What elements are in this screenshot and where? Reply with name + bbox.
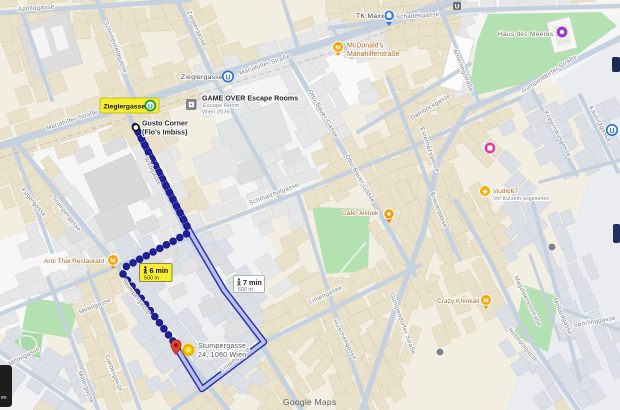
svg-text:600 m: 600 m (238, 287, 253, 293)
svg-text:Zieglergasse: Zieglergasse (181, 74, 223, 81)
svg-text:en: en (1, 395, 7, 401)
svg-text:Haus des Meeres: Haus des Meeres (498, 31, 554, 38)
svg-text:Zieglergasse: Zieglergasse (104, 104, 146, 111)
svg-text:Café Jelinek: Café Jelinek (342, 210, 379, 217)
svg-text:U: U (225, 75, 230, 82)
svg-text:★: ★ (482, 188, 489, 196)
svg-text:M: M (335, 45, 341, 52)
svg-text:Gusto Corner: Gusto Corner (142, 120, 188, 128)
svg-text:7 min: 7 min (243, 278, 262, 287)
svg-text:McDonald's: McDonald's (347, 43, 384, 50)
svg-text:Crazy Khinkali: Crazy Khinkali (437, 298, 480, 305)
svg-text:U: U (148, 103, 153, 110)
svg-text:Wien 2026: Wien 2026 (202, 110, 230, 116)
svg-text:M: M (483, 298, 489, 305)
svg-text:Escape Room: Escape Room (203, 103, 240, 109)
svg-text:Google Maps: Google Maps (283, 397, 336, 407)
svg-text:500 m: 500 m (144, 276, 159, 282)
svg-text:GAME OVER Escape Rooms: GAME OVER Escape Rooms (202, 95, 298, 103)
svg-text:U: U (455, 5, 459, 11)
svg-text:24, 1060 Wien: 24, 1060 Wien (198, 352, 246, 359)
svg-text:(Flo's Imbiss): (Flo's Imbiss) (142, 129, 188, 137)
svg-text:Vor Kurzem angesehen: Vor Kurzem angesehen (493, 196, 549, 202)
svg-text:TK Maxx: TK Maxx (356, 13, 385, 20)
svg-text:6 min: 6 min (150, 266, 169, 275)
svg-text:studio67: studio67 (493, 188, 518, 195)
svg-text:Aroi Thai Restaurant: Aroi Thai Restaurant (44, 258, 105, 265)
svg-text:M: M (110, 258, 116, 265)
svg-text:U: U (609, 128, 614, 135)
svg-text:Mariahilferstraße: Mariahilferstraße (347, 51, 400, 58)
svg-text:Stumpergasse: Stumpergasse (198, 343, 246, 350)
